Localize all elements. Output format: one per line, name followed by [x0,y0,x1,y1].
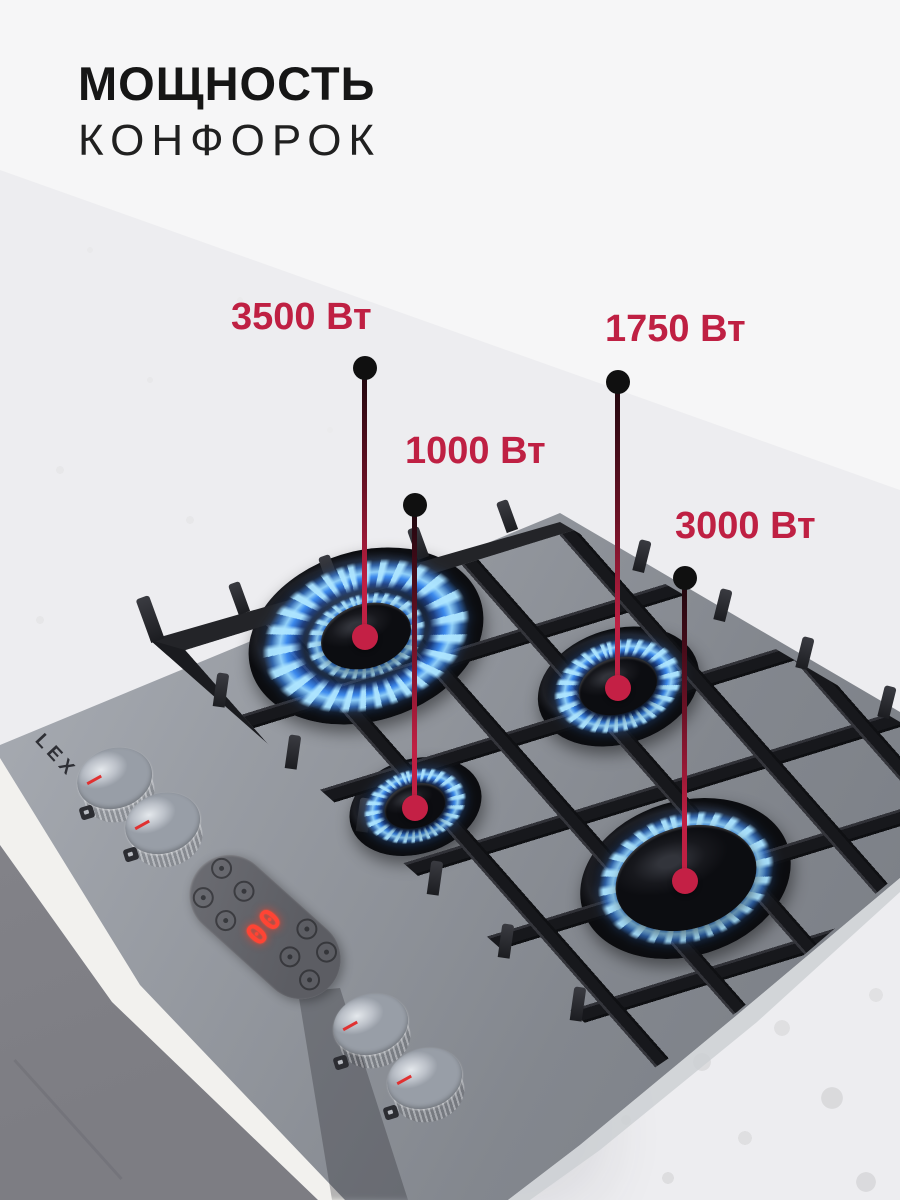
callout-end-dot [352,624,378,650]
touch-key-icon [229,876,259,906]
touch-key-icon [188,883,218,913]
callout-start-dot [606,370,630,394]
leader-line-rapid [682,578,687,881]
callout-end-dot [402,795,428,821]
power-label-auxiliary: 1000 Вт [405,430,546,473]
power-label-rapid: 3000 Вт [675,505,816,548]
callout-start-dot [403,493,427,517]
leader-line-semi-rapid [615,382,620,688]
power-label-semi-rapid: 1750 Вт [605,308,746,351]
callout-end-dot [605,675,631,701]
power-label-wok: 3500 Вт [231,296,372,339]
touch-key-icon [295,965,325,995]
touch-key-icon [275,942,305,972]
callout-start-dot [353,356,377,380]
callout-start-dot [673,566,697,590]
title-line2: КОНФОРОК [78,116,381,166]
product-infographic: LEX 00 МОЩНОСТЬ КОНФОРОК [0,0,900,1200]
title-line1: МОЩНОСТЬ [78,56,375,111]
touch-key-icon [312,937,342,967]
callout-end-dot [672,868,698,894]
leader-line-wok [362,368,367,637]
touch-key-icon [207,854,237,884]
leader-line-auxiliary [412,505,417,808]
